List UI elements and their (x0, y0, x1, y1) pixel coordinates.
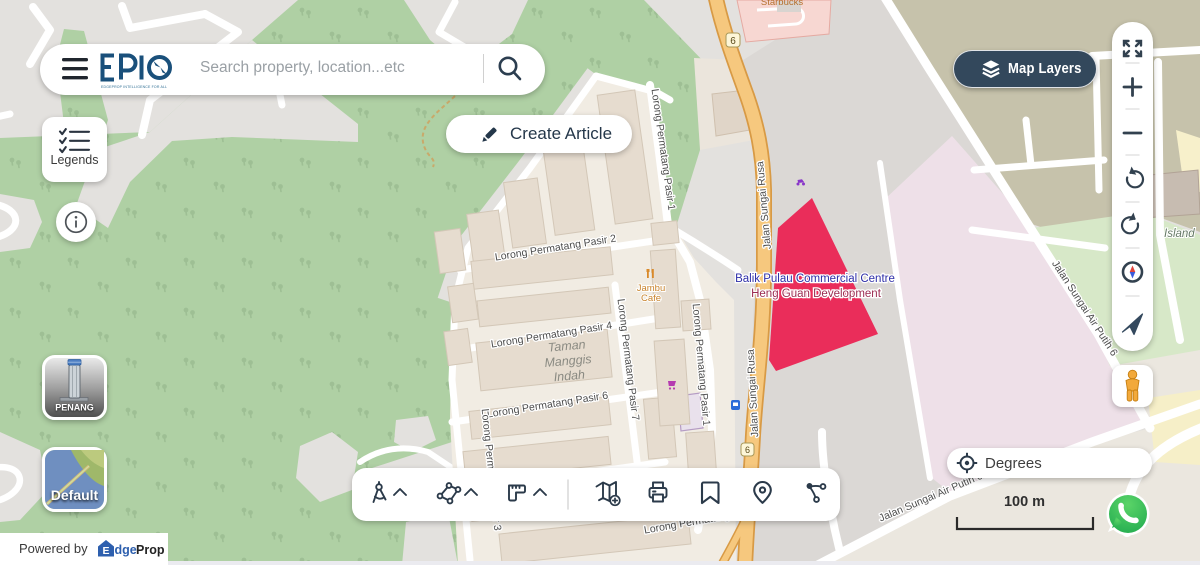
svg-text:Prop: Prop (136, 543, 165, 557)
svg-text:Starbucks: Starbucks (761, 0, 803, 8)
svg-text:Default: Default (51, 487, 99, 503)
svg-text:6: 6 (730, 36, 736, 47)
svg-text:Balik Pulau Commercial Centre: Balik Pulau Commercial Centre (735, 273, 895, 285)
svg-text:E: E (102, 545, 109, 557)
svg-text:Heng Guan Development: Heng Guan Development (751, 288, 882, 300)
svg-text:Island: Island (1164, 228, 1195, 240)
svg-text:6: 6 (745, 445, 750, 455)
svg-text:EDGEPROP INTELLIGENCE FOR ALL: EDGEPROP INTELLIGENCE FOR ALL (101, 85, 167, 89)
svg-text:Cafe: Cafe (641, 293, 661, 304)
svg-text:dge: dge (115, 543, 137, 557)
svg-text:Indah: Indah (553, 368, 585, 385)
svg-text:PENANG: PENANG (55, 403, 94, 413)
